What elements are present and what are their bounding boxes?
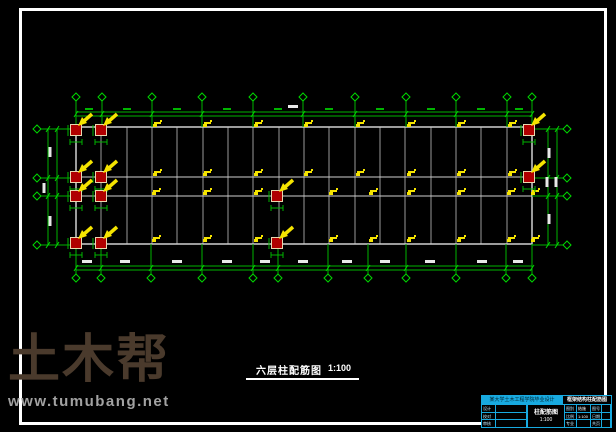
title-block-value: 结施 xyxy=(577,405,591,413)
dim-value-text xyxy=(325,108,333,110)
dim-value-text xyxy=(223,108,231,110)
axis-bubble-diamond xyxy=(563,125,571,133)
concrete-column xyxy=(71,238,82,249)
dim-value-text xyxy=(477,108,485,110)
column-tag xyxy=(507,188,516,195)
dim-value-text xyxy=(515,108,523,110)
axis-bubble-diamond xyxy=(351,93,359,101)
dim-value-text xyxy=(82,260,92,263)
dim-value-text xyxy=(172,260,182,263)
cad-screenshot: 六层柱配筋图 1:100 土木帮 www.tumubang.net 某大学土木工… xyxy=(0,0,616,432)
title-block-body: 设计校对审核 柱配筋图 1:100 图别结施图号比例1:100日期专业共页 xyxy=(482,405,611,428)
title-block-value xyxy=(496,405,527,413)
concrete-column xyxy=(96,238,107,249)
title-block-label: 日期 xyxy=(591,413,602,421)
dim-value-text xyxy=(376,108,384,110)
title-block-value xyxy=(577,420,591,428)
concrete-column xyxy=(96,172,107,183)
dim-value-text xyxy=(548,214,551,224)
column-tag xyxy=(407,188,416,195)
title-block-label: 审核 xyxy=(482,420,496,428)
dim-value-text xyxy=(85,108,93,110)
column-tag xyxy=(304,120,313,127)
column-tag xyxy=(304,169,313,176)
concrete-column xyxy=(272,238,283,249)
column-tag xyxy=(254,188,263,195)
plan-scale: 1:100 xyxy=(328,363,351,373)
column-tag xyxy=(153,169,162,176)
concrete-column xyxy=(272,191,283,202)
column-tag xyxy=(407,120,416,127)
column-tag xyxy=(203,188,212,195)
axis-bubble-diamond xyxy=(563,174,571,182)
column-tag xyxy=(203,169,212,176)
plan-title: 六层柱配筋图 xyxy=(256,362,322,377)
leader-arrow xyxy=(279,180,293,192)
title-block-project-name: 某大学土木工程学院毕业设计 xyxy=(482,396,562,404)
axis-bubble-diamond xyxy=(98,93,106,101)
axis-bubble-diamond xyxy=(452,93,460,101)
title-block-label: 校对 xyxy=(482,413,496,421)
dim-value-text xyxy=(222,260,232,263)
leader-arrow xyxy=(103,227,117,239)
axis-bubble-diamond xyxy=(563,192,571,200)
dim-value-text xyxy=(298,260,308,263)
column-tag xyxy=(369,235,378,242)
axis-bubble-diamond xyxy=(33,241,41,249)
column-tag xyxy=(254,169,263,176)
column-tag xyxy=(356,120,365,127)
dim-value-text xyxy=(260,260,270,263)
column-tag xyxy=(329,235,338,242)
dim-value-text xyxy=(425,260,435,263)
watermark-url: www.tumubang.net xyxy=(8,393,170,410)
leader-arrow xyxy=(279,227,293,239)
title-block-center-title: 柱配筋图 xyxy=(534,410,558,417)
dim-value-text xyxy=(513,260,523,263)
plan-title-underline xyxy=(246,378,359,380)
title-block-header: 某大学土木工程学院毕业设计 框架结构柱配筋图 xyxy=(482,396,611,405)
axis-bubble-diamond xyxy=(198,93,206,101)
leader-arrow xyxy=(103,161,117,173)
column-tag xyxy=(329,188,338,195)
title-block-center-cell: 柱配筋图 1:100 xyxy=(527,405,565,428)
dim-value-text xyxy=(123,108,131,110)
axis-bubble-diamond xyxy=(502,274,510,282)
axis-bubble-diamond xyxy=(72,274,80,282)
column-tag xyxy=(457,169,466,176)
title-block-value xyxy=(496,413,527,421)
column-tag xyxy=(507,235,516,242)
column-tag xyxy=(203,235,212,242)
axis-bubble-diamond xyxy=(33,174,41,182)
dim-value-text xyxy=(380,260,390,263)
concrete-column xyxy=(71,172,82,183)
concrete-column xyxy=(71,191,82,202)
column-tag xyxy=(152,188,161,195)
axis-bubble-diamond xyxy=(72,93,80,101)
column-tag xyxy=(203,120,212,127)
concrete-column xyxy=(524,125,535,136)
column-tag xyxy=(457,235,466,242)
dim-value-text xyxy=(173,108,181,110)
column-tag xyxy=(457,120,466,127)
dim-value-text xyxy=(342,260,352,263)
axis-bubble-diamond xyxy=(97,274,105,282)
title-block-label: 专业 xyxy=(565,420,577,428)
dim-value-text xyxy=(288,105,298,108)
dim-value-text xyxy=(477,260,487,263)
axis-bubble-diamond xyxy=(198,274,206,282)
leader-arrow xyxy=(531,161,545,173)
column-tag xyxy=(254,120,263,127)
leader-arrow xyxy=(78,227,92,239)
column-tag xyxy=(407,169,416,176)
title-block-drawing-name: 框架结构柱配筋图 xyxy=(562,396,611,404)
dim-value-text xyxy=(43,183,46,193)
axis-bubble-diamond xyxy=(33,125,41,133)
title-block-value: 1:100 xyxy=(577,413,591,421)
concrete-column xyxy=(96,125,107,136)
axis-bubble-diamond xyxy=(364,274,372,282)
leader-arrow xyxy=(78,161,92,173)
axis-bubble-diamond xyxy=(528,93,536,101)
axis-bubble-diamond xyxy=(148,93,156,101)
column-tag xyxy=(152,235,161,242)
axis-bubble-diamond xyxy=(452,274,460,282)
axis-bubble-diamond xyxy=(274,274,282,282)
dim-value-text xyxy=(427,108,435,110)
column-tag xyxy=(508,169,517,176)
concrete-column xyxy=(524,172,535,183)
axis-bubble-diamond xyxy=(402,274,410,282)
axis-bubble-diamond xyxy=(503,93,511,101)
dim-value-text xyxy=(546,177,549,187)
leader-arrow xyxy=(531,114,545,126)
axis-bubble-diamond xyxy=(147,274,155,282)
title-block-signature-cells: 设计校对审核 xyxy=(482,405,527,428)
concrete-column xyxy=(96,191,107,202)
title-block-center-scale: 1:100 xyxy=(540,417,553,423)
axis-bubble-diamond xyxy=(33,192,41,200)
axis-bubble-diamond xyxy=(324,274,332,282)
title-block-label: 共页 xyxy=(591,420,602,428)
column-tag xyxy=(457,188,466,195)
title-block-value xyxy=(602,405,611,413)
dim-value-text xyxy=(49,147,52,157)
dim-value-text xyxy=(274,108,282,110)
title-block-value xyxy=(496,420,527,428)
axis-bubble-diamond xyxy=(299,93,307,101)
concrete-column xyxy=(71,125,82,136)
title-block-value xyxy=(602,420,611,428)
title-block-label: 图号 xyxy=(591,405,602,413)
title-block-label: 图别 xyxy=(565,405,577,413)
column-tag xyxy=(369,188,378,195)
title-block-label: 比例 xyxy=(565,413,577,421)
dim-value-text xyxy=(120,260,130,263)
title-block-label: 设计 xyxy=(482,405,496,413)
column-tag xyxy=(407,235,416,242)
title-block: 某大学土木工程学院毕业设计 框架结构柱配筋图 设计校对审核 柱配筋图 1:100… xyxy=(481,395,612,428)
column-tag xyxy=(508,120,517,127)
dim-value-text xyxy=(49,216,52,226)
watermark-brand: 土木帮 xyxy=(8,334,170,386)
axis-bubble-diamond xyxy=(563,241,571,249)
column-tag xyxy=(356,169,365,176)
axis-bubble-diamond xyxy=(528,274,536,282)
title-block-value xyxy=(602,413,611,421)
dim-value-text xyxy=(555,177,558,187)
column-tag xyxy=(254,235,263,242)
title-block-info-cells: 图别结施图号比例1:100日期专业共页 xyxy=(565,405,611,428)
column-tag xyxy=(153,120,162,127)
axis-bubble-diamond xyxy=(249,274,257,282)
dim-value-text xyxy=(548,148,551,158)
axis-bubble-diamond xyxy=(402,93,410,101)
axis-bubble-diamond xyxy=(249,93,257,101)
